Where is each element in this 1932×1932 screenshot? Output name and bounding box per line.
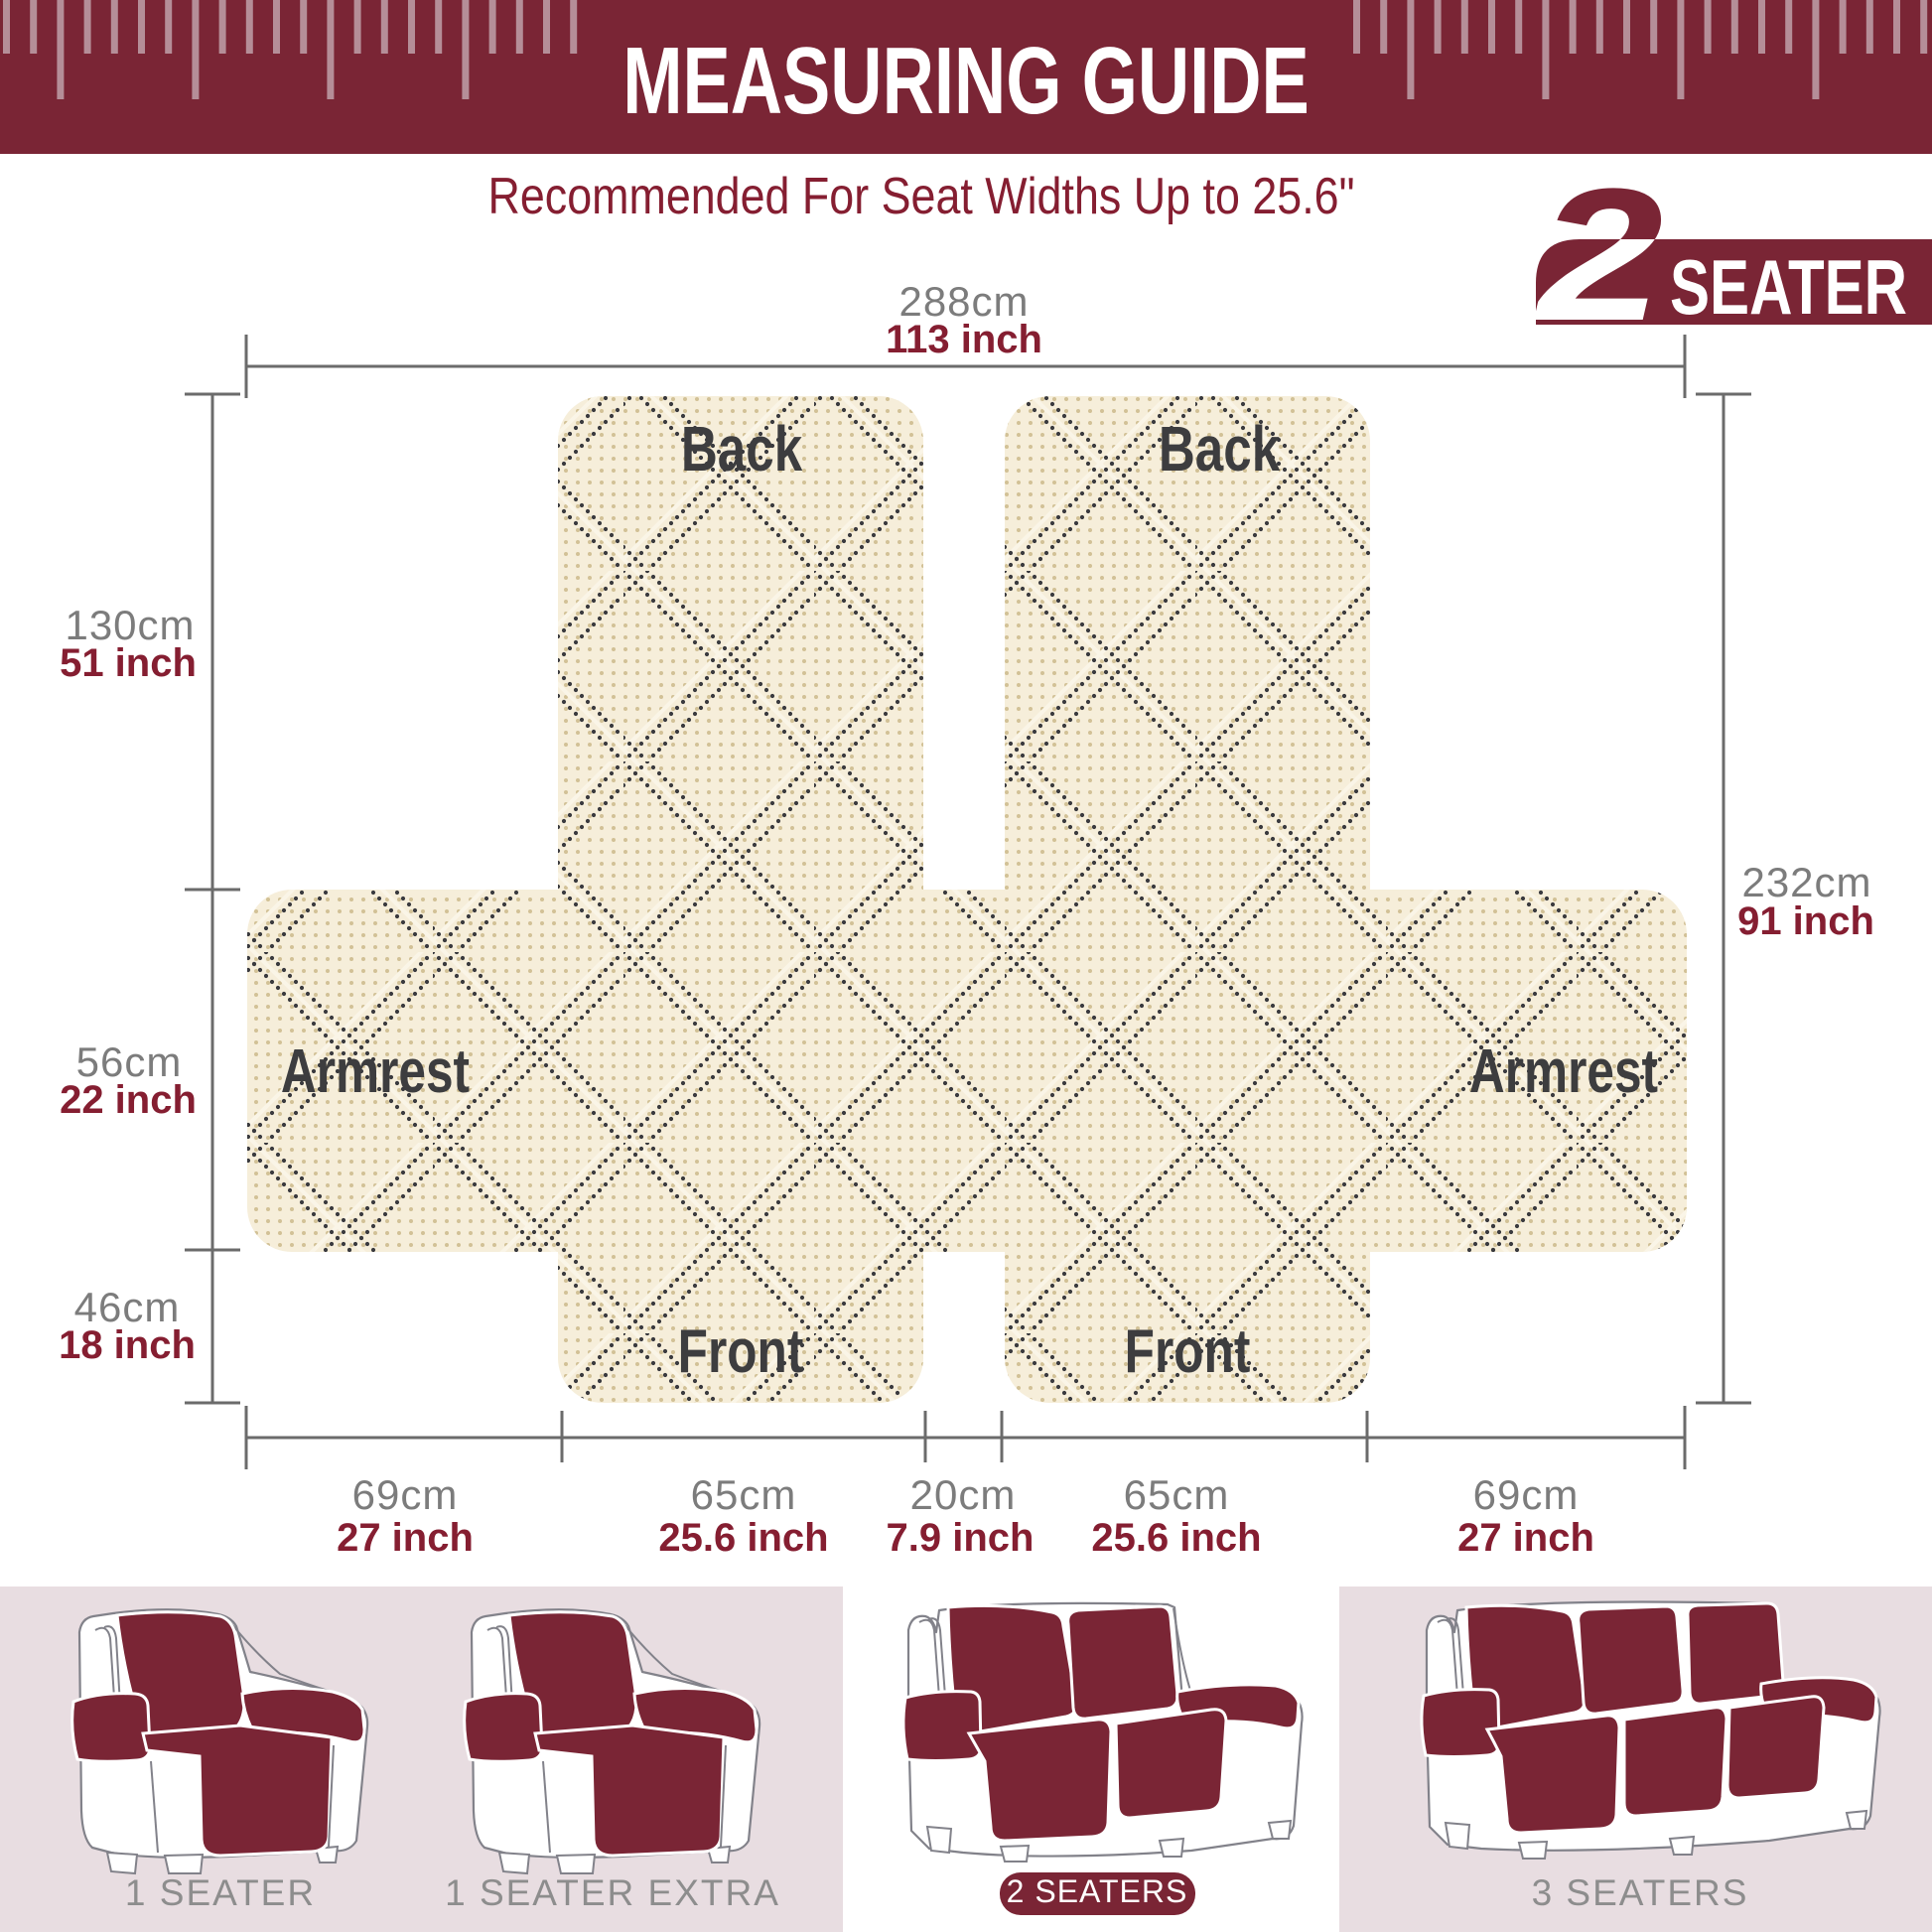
svg-text:2 SEATERS: 2 SEATERS xyxy=(1007,1873,1188,1909)
svg-text:65cm: 65cm xyxy=(691,1471,797,1518)
svg-text:1 SEATER EXTRA: 1 SEATER EXTRA xyxy=(445,1872,780,1913)
svg-text:27 inch: 27 inch xyxy=(337,1516,474,1560)
svg-text:25.6 inch: 25.6 inch xyxy=(658,1516,828,1560)
svg-text:18 inch: 18 inch xyxy=(59,1323,196,1367)
svg-text:91 inch: 91 inch xyxy=(1737,899,1874,943)
svg-text:22 inch: 22 inch xyxy=(60,1078,197,1122)
svg-text:27 inch: 27 inch xyxy=(1457,1516,1594,1560)
svg-text:Back: Back xyxy=(681,415,803,485)
svg-text:7.9 inch: 7.9 inch xyxy=(887,1516,1035,1560)
svg-text:25.6 inch: 25.6 inch xyxy=(1091,1516,1261,1560)
svg-text:Armrest: Armrest xyxy=(1469,1036,1658,1106)
svg-text:3 SEATERS: 3 SEATERS xyxy=(1532,1872,1749,1913)
svg-text:Back: Back xyxy=(1159,415,1281,485)
svg-text:Front: Front xyxy=(678,1316,804,1386)
svg-text:113 inch: 113 inch xyxy=(886,318,1042,361)
svg-text:Armrest: Armrest xyxy=(281,1036,470,1106)
svg-text:SEATER: SEATER xyxy=(1670,244,1907,331)
svg-text:51 inch: 51 inch xyxy=(60,641,197,685)
svg-text:69cm: 69cm xyxy=(1473,1471,1580,1518)
svg-text:MEASURING GUIDE: MEASURING GUIDE xyxy=(622,28,1310,134)
svg-text:Recommended For Seat Widths Up: Recommended For Seat Widths Up to 25.6" xyxy=(488,168,1355,225)
svg-text:232cm: 232cm xyxy=(1741,859,1871,905)
svg-text:1 SEATER: 1 SEATER xyxy=(125,1872,316,1913)
svg-text:69cm: 69cm xyxy=(352,1471,459,1518)
svg-text:Front: Front xyxy=(1125,1316,1251,1386)
svg-text:65cm: 65cm xyxy=(1124,1471,1230,1518)
svg-text:20cm: 20cm xyxy=(910,1471,1017,1518)
